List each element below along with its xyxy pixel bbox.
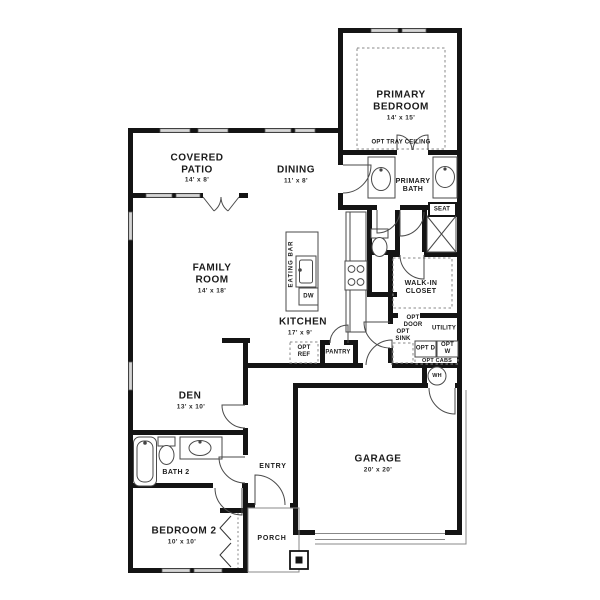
stove bbox=[345, 261, 367, 290]
label-opt-ref: OPT REF bbox=[292, 345, 316, 359]
front-door bbox=[255, 475, 285, 505]
garage-entry-door bbox=[429, 388, 455, 414]
label-opt-dryer: OPT D bbox=[416, 346, 436, 353]
toilet-icon bbox=[372, 238, 387, 257]
room-dims-primary-bedroom: 14' x 15' bbox=[387, 114, 415, 121]
room-label-kitchen: KITCHEN bbox=[279, 316, 327, 328]
room-dims-garage: 20' x 20' bbox=[364, 466, 392, 473]
room-label-family-room: FAMILY ROOM bbox=[180, 263, 244, 286]
label-dishwasher: DW bbox=[303, 293, 313, 300]
room-label-walk-in-closet: WALK-IN CLOSET bbox=[395, 280, 447, 296]
label-eating-bar: EATING BAR bbox=[289, 241, 296, 288]
room-label-garage: GARAGE bbox=[355, 453, 402, 465]
floor-plan-drawing bbox=[0, 0, 600, 600]
room-label-bath2: BATH 2 bbox=[158, 469, 194, 477]
note-opt-tray-ceiling: OPT TRAY CEILING bbox=[372, 140, 431, 147]
floor-plan: PRIMARY BEDROOM 14' x 15' OPT TRAY CEILI… bbox=[0, 0, 600, 600]
shower-area-door bbox=[400, 212, 424, 236]
closet-bifold-doors bbox=[220, 516, 231, 567]
opt-sink-outline bbox=[393, 343, 413, 363]
room-dims-covered-patio: 14' x 8' bbox=[185, 176, 209, 183]
primary-suite-door bbox=[343, 165, 371, 193]
toilet-icon bbox=[159, 446, 174, 465]
bath2-door bbox=[219, 457, 245, 483]
room-dims-kitchen: 17' x 9' bbox=[288, 329, 312, 336]
site-lines bbox=[248, 390, 466, 572]
toilet-tank bbox=[158, 437, 175, 446]
porch-column bbox=[290, 551, 308, 569]
den-door bbox=[222, 405, 245, 428]
label-pantry: PANTRY bbox=[325, 350, 350, 357]
room-dims-bedroom2: 10' x 10' bbox=[168, 538, 196, 545]
label-opt-washer: OPT W bbox=[438, 342, 458, 356]
toilet-tank bbox=[371, 229, 388, 238]
label-opt-sink: OPT SINK bbox=[391, 329, 415, 343]
room-label-entry: ENTRY bbox=[259, 463, 286, 471]
room-label-bedroom2: BEDROOM 2 bbox=[151, 525, 216, 537]
label-opt-cabs: OPT CABS bbox=[422, 357, 452, 363]
label-water-heater: WH bbox=[432, 373, 442, 379]
room-dims-dining: 11' x 8' bbox=[284, 177, 308, 184]
room-label-porch: PORCH bbox=[257, 535, 286, 543]
room-dims-den: 13' x 10' bbox=[177, 403, 205, 410]
label-seat: SEAT bbox=[434, 206, 450, 213]
room-label-dining: DINING bbox=[277, 164, 315, 176]
room-label-utility: UTILITY bbox=[432, 326, 456, 333]
fixture-details bbox=[220, 216, 456, 567]
room-label-primary-bath: PRIMARY BATH bbox=[385, 178, 441, 194]
room-label-covered-patio: COVERED PATIO bbox=[156, 153, 238, 176]
utility-door bbox=[364, 322, 390, 348]
room-label-primary-bedroom: PRIMARY BEDROOM bbox=[355, 90, 447, 113]
room-dims-family-room: 14' x 18' bbox=[198, 287, 226, 294]
room-label-den: DEN bbox=[179, 390, 202, 402]
patio-door bbox=[203, 197, 239, 211]
walk-in-closet-door bbox=[400, 255, 424, 279]
label-opt-door: OPT DOOR bbox=[400, 315, 426, 329]
